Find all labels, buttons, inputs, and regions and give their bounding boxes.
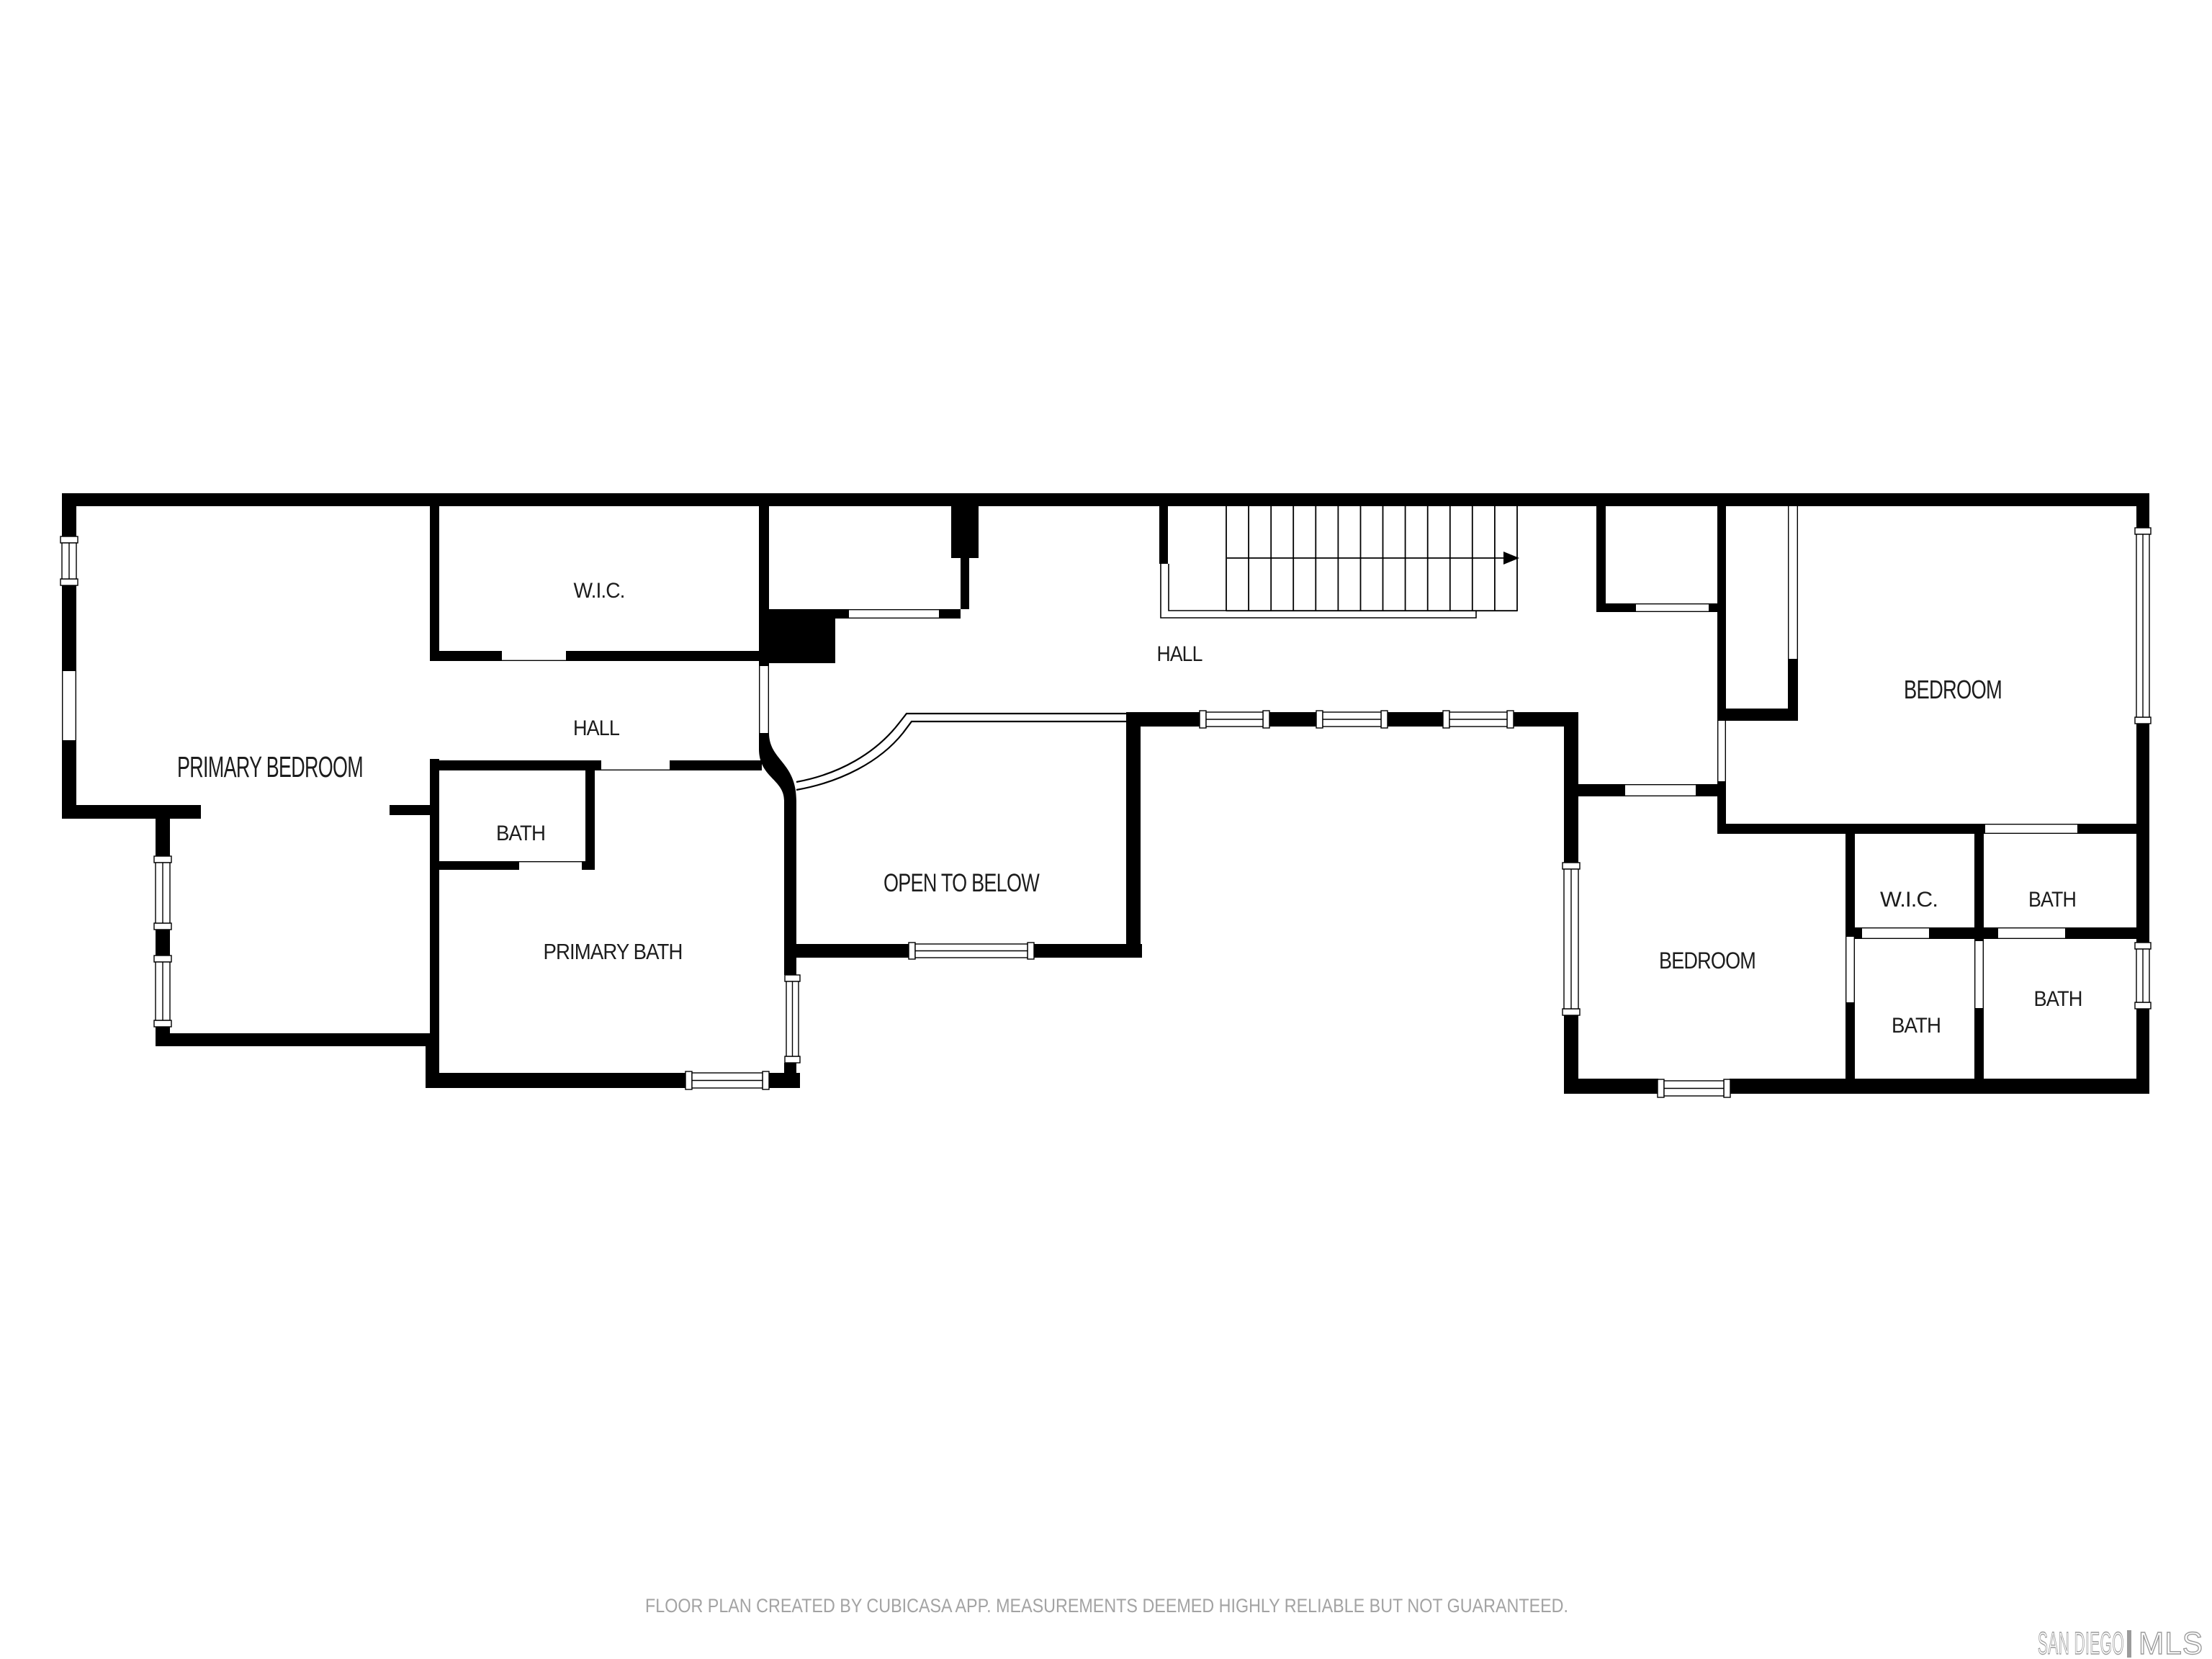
svg-text:SAN DIEGO: SAN DIEGO <box>2038 1626 2124 1659</box>
svg-text:PRIMARY BATH: PRIMARY BATH <box>544 939 683 964</box>
svg-text:BATH: BATH <box>2034 987 2082 1011</box>
svg-text:W.I.C.: W.I.C. <box>1880 888 1938 912</box>
svg-text:W.I.C.: W.I.C. <box>574 579 625 603</box>
svg-text:HALL: HALL <box>573 716 619 740</box>
svg-text:BATH: BATH <box>1892 1014 1941 1038</box>
svg-text:HALL: HALL <box>1157 642 1202 666</box>
svg-text:BEDROOM: BEDROOM <box>1904 675 2002 704</box>
svg-text:PRIMARY BEDROOM: PRIMARY BEDROOM <box>177 750 363 783</box>
svg-text:BATH: BATH <box>2028 888 2076 912</box>
svg-text:BATH: BATH <box>496 822 545 845</box>
svg-text:OPEN TO BELOW: OPEN TO BELOW <box>884 869 1040 897</box>
svg-text:FLOOR PLAN CREATED BY CUBICASA: FLOOR PLAN CREATED BY CUBICASA APP. MEAS… <box>645 1595 1568 1617</box>
svg-text:MLS: MLS <box>2139 1626 2203 1659</box>
svg-text:BEDROOM: BEDROOM <box>1659 948 1755 974</box>
